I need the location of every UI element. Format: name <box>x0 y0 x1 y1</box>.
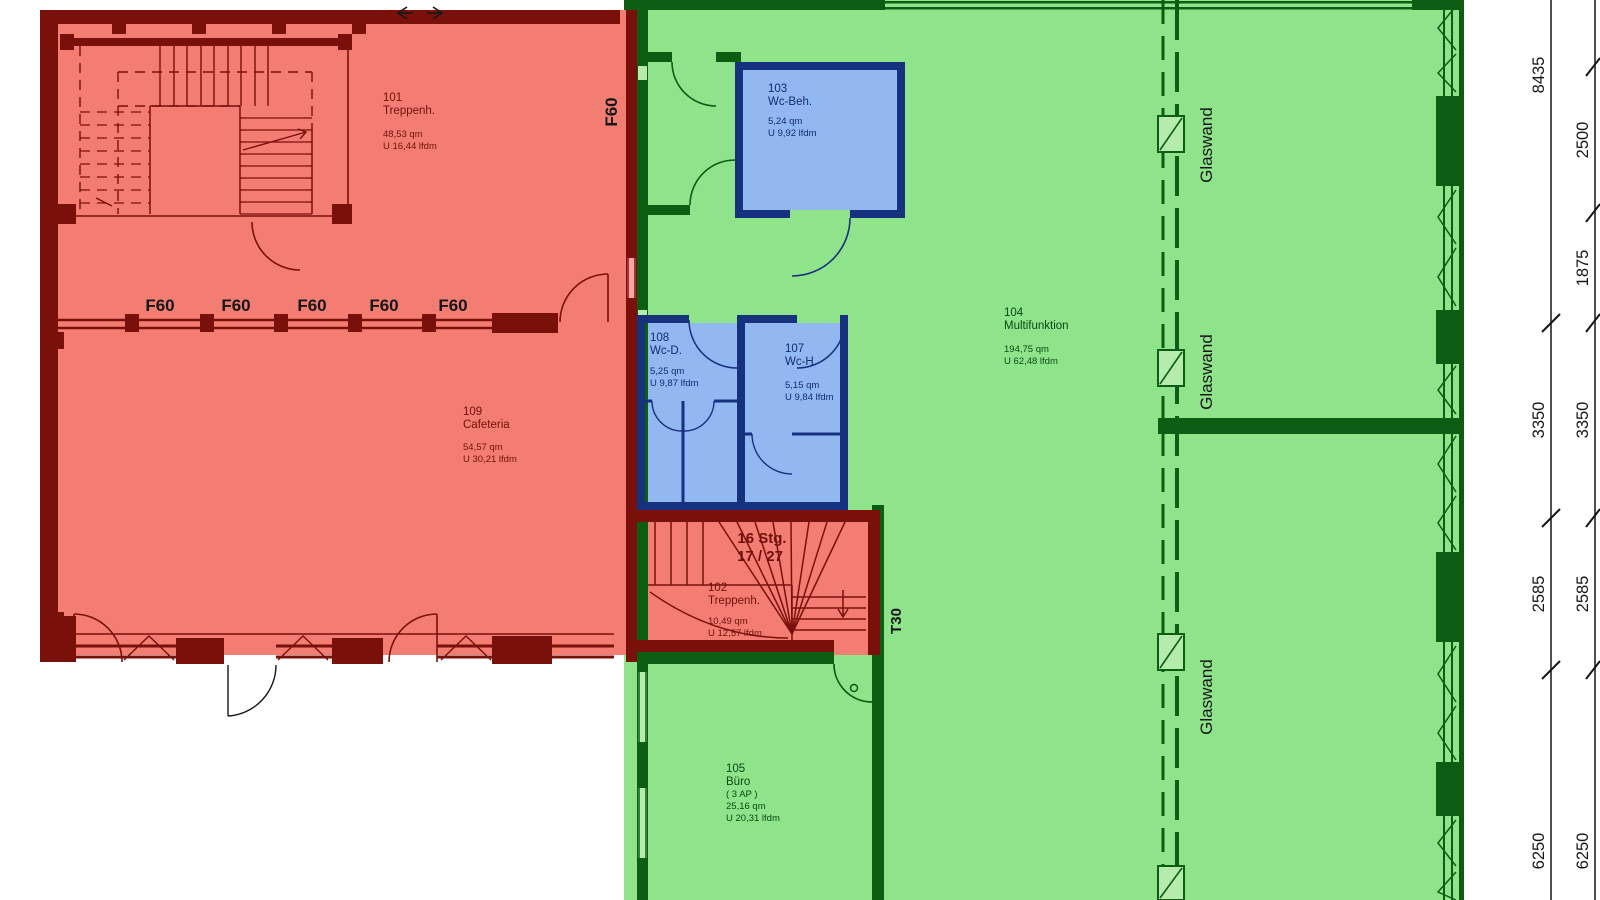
room-perimeter: U 9,87 lfdm <box>650 378 699 389</box>
room-perimeter: U 9,84 lfdm <box>785 392 834 403</box>
room-perimeter: U 12,57 lfdm <box>708 628 762 639</box>
room-number: 107 <box>785 343 804 355</box>
room-perimeter: U 30,21 lfdm <box>463 454 517 465</box>
room-perimeter: U 62,48 lfdm <box>1004 356 1058 367</box>
f60-label: F60 <box>369 296 398 315</box>
room-name: Wc-H. <box>785 356 817 368</box>
room-number: 102 <box>708 582 727 594</box>
stair-count: 16 Stg. <box>737 530 786 547</box>
glaswand-label: Glaswand <box>1197 659 1216 735</box>
f60-label: F60 <box>145 296 174 315</box>
floor-plan-page: 8435 3350 2585 6250 2500 1875 3350 2585 … <box>0 0 1600 900</box>
f60-label: F60 <box>438 296 467 315</box>
room-name: Treppenh. <box>708 595 760 607</box>
dim-inner-2585: 2585 <box>1530 576 1548 613</box>
dim-outer-1875: 1875 <box>1574 250 1592 287</box>
dim-outer-6250: 6250 <box>1574 833 1592 870</box>
dim-inner-3350: 3350 <box>1530 402 1548 439</box>
room-name: Wc-Beh. <box>768 96 812 108</box>
room-number: 109 <box>463 406 482 418</box>
dimension-chains: 8435 3350 2585 6250 2500 1875 3350 2585 … <box>1530 0 1600 900</box>
room-area: 48,53 qm <box>383 129 423 140</box>
room-area: 54,57 qm <box>463 442 503 453</box>
room-name: Cafeteria <box>463 419 510 431</box>
dim-outer-2500: 2500 <box>1574 122 1592 159</box>
room-number: 108 <box>650 332 669 344</box>
dimension-labels-outer: 2500 1875 3350 2585 6250 <box>1574 122 1592 870</box>
room-name: Treppenh. <box>383 105 435 117</box>
room-extra: ( 3 AP ) <box>726 789 758 800</box>
dim-outer-3350: 3350 <box>1574 402 1592 439</box>
room-perimeter: U 20,31 lfdm <box>726 813 780 824</box>
room-number: 103 <box>768 83 787 95</box>
room-number: 104 <box>1004 307 1024 319</box>
exterior-door <box>228 665 276 716</box>
room-perimeter: U 9,92 lfdm <box>768 128 817 139</box>
zone-fills <box>40 0 1464 900</box>
dimension-labels-inner: 8435 3350 2585 6250 <box>1530 57 1548 870</box>
dim-outer-2585: 2585 <box>1574 576 1592 613</box>
f60-label: F60 <box>221 296 250 315</box>
room-name: Multifunktion <box>1004 320 1069 332</box>
room-103-fill <box>743 70 897 210</box>
room-name: Büro <box>726 776 750 788</box>
room-area: 5,25 qm <box>650 366 684 377</box>
room-area: 194,75 qm <box>1004 344 1049 355</box>
dim-inner-6250: 6250 <box>1530 833 1548 870</box>
dim-inner-8435: 8435 <box>1530 57 1548 94</box>
f60-label-vertical: F60 <box>602 97 621 126</box>
room-name: Wc-D. <box>650 345 682 357</box>
t30-label: T30 <box>888 608 905 634</box>
room-area: 5,15 qm <box>785 380 819 391</box>
floor-plan-svg: 8435 3350 2585 6250 2500 1875 3350 2585 … <box>0 0 1600 900</box>
f60-label: F60 <box>297 296 326 315</box>
room-number: 105 <box>726 763 745 775</box>
glaswand-label: Glaswand <box>1197 334 1216 410</box>
room-area: 10,49 qm <box>708 616 748 627</box>
room-number: 101 <box>383 92 402 104</box>
stair-rise-run: 17 / 27 <box>737 548 783 565</box>
room-area: 25,16 qm <box>726 801 766 812</box>
glaswand-label: Glaswand <box>1197 107 1216 183</box>
room-perimeter: U 16,44 lfdm <box>383 141 437 152</box>
room-area: 5,24 qm <box>768 116 802 127</box>
